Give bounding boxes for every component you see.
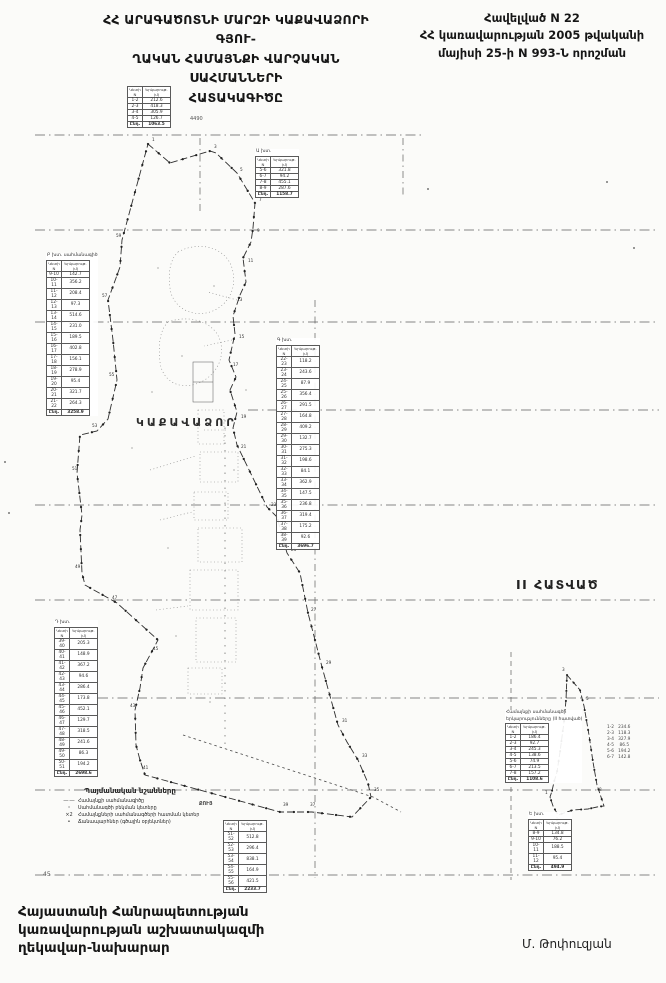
cell: 52-53 xyxy=(224,843,239,854)
cell: 321.7 xyxy=(62,387,90,398)
legend-item-label: Համայնքների սահմանագծերի հատման կետեր xyxy=(78,813,199,818)
boundary-point-number: 53 xyxy=(92,423,98,428)
legend-item: —·—Համայնքի սահմանագիծը xyxy=(60,798,240,804)
cell: 97.3 xyxy=(62,299,90,310)
cell: 362.9 xyxy=(292,477,320,488)
cell: 838.1 xyxy=(239,854,267,865)
boundary-point-number: 29 xyxy=(326,660,332,665)
text-line: կառավարության աշխատակազմի xyxy=(18,921,264,939)
col-header: Երկարութ. (մ) xyxy=(292,345,320,356)
text-line: 6-7 142.8 xyxy=(607,755,630,761)
boundary-point-number: 8 xyxy=(599,787,602,792)
legend-items: —·—Համայնքի սահմանագիծը⹀Սահմանագծի բեկմա… xyxy=(60,798,240,825)
boundary-point-number: 41 xyxy=(143,765,149,770)
cell: 55-56 xyxy=(224,876,239,887)
cell: 22-23 xyxy=(277,356,292,367)
cell: 156.1 xyxy=(62,354,90,365)
cell: 12-13 xyxy=(47,299,62,310)
cell: 275.3 xyxy=(292,444,320,455)
cell: 291.5 xyxy=(292,400,320,411)
cell: 94.6 xyxy=(70,671,98,682)
cell: 33-34 xyxy=(277,477,292,488)
signature-name: Մ. Թոփուզյան xyxy=(522,937,612,951)
boundary-point-number: 39 xyxy=(283,802,289,807)
table-caption: Գ խտ. xyxy=(277,338,320,344)
speck xyxy=(427,188,429,190)
cell: 16-17 xyxy=(47,343,62,354)
cell: 35-36 xyxy=(277,499,292,510)
cell: 1063.5 xyxy=(143,122,171,128)
legend-symbol: —·— xyxy=(60,798,78,804)
cell: 92.6 xyxy=(292,532,320,543)
cell: 3258.9 xyxy=(62,409,90,415)
settlement-detail xyxy=(150,246,242,694)
cell: 43-44 xyxy=(55,682,70,693)
cell: 147.5 xyxy=(292,488,320,499)
cell: 39-40 xyxy=(55,638,70,649)
village-name-label: ԿԱՔԱՎԱՁՈՐ xyxy=(136,416,237,429)
cell: 26-27 xyxy=(277,400,292,411)
boundary-point-number: 17 xyxy=(233,362,239,367)
text-line: Հայաստանի Հանրապետության xyxy=(18,903,264,921)
cell: Ընդ. xyxy=(128,122,143,128)
cell: 46-47 xyxy=(55,715,70,726)
coord-table: Կետի NԵրկարութ. (մ)1-2212.62-3418.33-430… xyxy=(127,86,171,128)
cell: Ընդ. xyxy=(55,770,70,776)
speck xyxy=(606,181,608,183)
cell: 84.1 xyxy=(292,466,320,477)
settlement-rects xyxy=(193,362,213,402)
col-header: Երկարութ. (մ) xyxy=(62,260,90,271)
cell: Ընդ. xyxy=(256,191,271,197)
cell: 19-20 xyxy=(47,376,62,387)
cell: 45-46 xyxy=(55,704,70,715)
cell: 198.6 xyxy=(292,455,320,466)
boundary-point-number: 27 xyxy=(311,607,317,612)
boundary-point-number: 1 xyxy=(152,137,155,142)
cell: 3696.7 xyxy=(292,543,320,549)
boundary-point-number: 5 xyxy=(240,167,243,172)
cell: Ընդ. xyxy=(277,543,292,549)
text-line: ղեկավար-նախարար xyxy=(18,939,264,957)
cell: 34-35 xyxy=(277,488,292,499)
boundary-point-number: 1 xyxy=(545,790,548,795)
legend-item: ×2Համայնքների սահմանագծերի հատման կետեր xyxy=(60,812,240,818)
map-side-note: ՔՈՒՅ xyxy=(199,801,212,807)
legend-symbol: ⹀ xyxy=(60,805,78,811)
table-caption: Դ խտ. xyxy=(55,620,98,626)
scanned-map-document: { "header": { "title_lines": [ "ՀՀ ԱՐԱԳԱ… xyxy=(0,0,666,983)
cell: 25-26 xyxy=(277,389,292,400)
col-header: Կետի N xyxy=(128,87,143,98)
cell: 51-52 xyxy=(224,832,239,843)
cell: 23-24 xyxy=(277,367,292,378)
boundary-point-number: 15 xyxy=(239,334,245,339)
legend-item-label: Սահմանագծի բեկման կետերը xyxy=(78,806,157,811)
cell: 2233.7 xyxy=(239,887,267,893)
col-header: Կետի N xyxy=(506,724,521,735)
cell: 10-11 xyxy=(529,842,544,853)
legend-symbol: ×2 xyxy=(60,812,78,818)
cell: 24-25 xyxy=(277,378,292,389)
cell: 164.8 xyxy=(292,411,320,422)
cell: 188.5 xyxy=(544,842,572,853)
coord-table: Դ խտ.Կետի NԵրկարութ. (մ)39-40205.340-411… xyxy=(54,620,98,777)
col-header: Կետի N xyxy=(47,260,62,271)
legend-item: •Ճանապարհներ (գծային օբյեկտներ) xyxy=(60,819,240,825)
cell: 514.6 xyxy=(62,310,90,321)
speck xyxy=(4,461,6,463)
coord-note-block: 1-2 234.62-3 118.33-4 327.94-5 86.55-6 1… xyxy=(607,725,630,761)
cell: 95.4 xyxy=(544,853,572,864)
cell: 175.2 xyxy=(292,521,320,532)
cell: 296.4 xyxy=(239,843,267,854)
cell: 40-41 xyxy=(55,649,70,660)
boundary-point-number: 3 xyxy=(562,667,565,672)
col-header: Երկարութ. (մ) xyxy=(544,819,572,830)
legend-item-label: Ճանապարհներ (գծային օբյեկտներ) xyxy=(78,820,171,825)
boundary-point-number: 37 xyxy=(310,802,316,807)
cell: 11-12 xyxy=(529,853,544,864)
cell: 32-33 xyxy=(277,466,292,477)
coord-table: Գ խտ.Կետի NԵրկարութ. (մ)22-23118.223-242… xyxy=(276,338,320,550)
boundary-point-number: 47 xyxy=(112,595,118,600)
coord-table: Ե խտ.Կետի NԵրկարութ. (մ)8-9134.89-1076.2… xyxy=(528,812,572,871)
table-caption: Ե խտ. xyxy=(529,812,572,818)
coord-table-grid: Կետի NԵրկարութ. (մ)22-23118.223-24243.62… xyxy=(276,345,320,550)
cell: 194.2 xyxy=(70,759,98,770)
boundary-point-number: 19 xyxy=(241,414,247,419)
col-header: Երկարութ. (մ) xyxy=(239,821,267,832)
col-header: Երկարութ. (մ) xyxy=(271,156,299,167)
boundary-point-number: 49 xyxy=(75,564,81,569)
cell: 132.7 xyxy=(292,433,320,444)
speck xyxy=(633,247,635,249)
cell: 50-51 xyxy=(55,759,70,770)
legend-title: Պայմանական նշանները xyxy=(84,787,240,795)
boundary-point-number: 9 xyxy=(257,228,260,233)
boundary-point-number: 57 xyxy=(102,293,108,298)
cell: 14-15 xyxy=(47,321,62,332)
boundary-point-number: 43 xyxy=(130,703,136,708)
cell: 452.1 xyxy=(70,704,98,715)
cell: 319.4 xyxy=(292,510,320,521)
cell: 42-43 xyxy=(55,671,70,682)
cell: 189.5 xyxy=(62,332,90,343)
cell: 1158.7 xyxy=(271,191,299,197)
cell: 87.9 xyxy=(292,378,320,389)
cell: 44-45 xyxy=(55,693,70,704)
col-header: Կետի N xyxy=(256,156,271,167)
boundary-point-number: 7 xyxy=(259,197,262,202)
table-caption: Բ խտ. սահմանագիծ xyxy=(47,253,98,259)
cell: 164.9 xyxy=(239,865,267,876)
cell: 11-12 xyxy=(47,288,62,299)
cell: 278.9 xyxy=(62,365,90,376)
table-caption: Համայնքի սահմանագծի xyxy=(506,710,582,716)
boundary-point-number: 55 xyxy=(109,372,115,377)
community-boundary xyxy=(77,144,371,817)
col-header: Կետի N xyxy=(277,345,292,356)
cell: 205.3 xyxy=(70,638,98,649)
coord-table: Կետի NԵրկարութ. (մ)51-52512.852-53296.45… xyxy=(223,820,267,893)
signing-authority-block: Հայաստանի Հանրապետությանկառավարության աշ… xyxy=(18,903,264,958)
boundary-point-number: 21 xyxy=(241,444,247,449)
cell: 28-29 xyxy=(277,422,292,433)
cell: 18-19 xyxy=(47,365,62,376)
cell: 49-50 xyxy=(55,748,70,759)
col-header: Կետի N xyxy=(529,819,544,830)
cell: 54-55 xyxy=(224,865,239,876)
boundary-point-number: 5 xyxy=(586,696,589,701)
cell: 494.9 xyxy=(544,864,572,870)
boundary-point-number: 59 xyxy=(116,233,122,238)
coord-table-grid: Կետի NԵրկարութ. (մ)5-6321.86-794.27-8455… xyxy=(255,156,299,198)
col-header: Երկարութ. (մ) xyxy=(521,724,549,735)
cell: 173.8 xyxy=(70,693,98,704)
legend-item-label: Համայնքի սահմանագիծը xyxy=(78,799,144,804)
grid-coordinate-label-top: 4490 xyxy=(190,116,203,122)
cell: 208.4 xyxy=(62,288,90,299)
cell: 21-22 xyxy=(47,398,62,409)
col-header: Երկարութ. (մ) xyxy=(143,87,171,98)
coord-table-grid: Կետի NԵրկարութ. (մ)9-10142.710-11356.211… xyxy=(46,260,90,416)
cell: 47-48 xyxy=(55,726,70,737)
cell: 421.5 xyxy=(239,876,267,887)
coord-table: Ա խտ.Կետի NԵրկարութ. (մ)5-6321.86-794.27… xyxy=(255,149,299,198)
legend: Պայմանական նշանները —·—Համայնքի սահմանագ… xyxy=(60,787,240,826)
cell: 231.0 xyxy=(62,321,90,332)
cell: 402.8 xyxy=(62,343,90,354)
cell: Ընդ. xyxy=(529,864,544,870)
speck xyxy=(8,512,10,514)
boundary-point-number: 33 xyxy=(362,753,368,758)
cell: 512.8 xyxy=(239,832,267,843)
cell: 2698.6 xyxy=(70,770,98,776)
coord-table-grid: Կետի NԵրկարութ. (մ)51-52512.852-53296.45… xyxy=(223,820,267,893)
coord-table-grid: Կետի NԵրկարութ. (մ)39-40205.340-41148.94… xyxy=(54,627,98,777)
boundary-point-number: 31 xyxy=(342,718,348,723)
cell: 243.6 xyxy=(292,367,320,378)
legend-item: ⹀Սահմանագծի բեկման կետերը xyxy=(60,805,240,811)
cell: 148.9 xyxy=(70,649,98,660)
map-specks xyxy=(131,267,246,702)
legend-symbol: • xyxy=(60,819,78,825)
table-caption: երկարությունները (II հատված) xyxy=(506,717,582,723)
cell: Ընդ. xyxy=(47,409,62,415)
boundary-point-number: 35 xyxy=(374,787,380,792)
coord-table-grid: Կետի NԵրկարութ. (մ)1-2186.42-392.73-4245… xyxy=(505,723,549,783)
cell: 41-42 xyxy=(55,660,70,671)
cell: 53-54 xyxy=(224,854,239,865)
cell: 356.4 xyxy=(292,389,320,400)
cell: 86.3 xyxy=(70,748,98,759)
coord-table: Բ խտ. սահմանագիծԿետի NԵրկարութ. (մ)9-101… xyxy=(46,253,98,416)
boundary-point-number: 11 xyxy=(248,258,254,263)
coord-table-grid: Կետի NԵրկարութ. (մ)1-2212.62-3418.33-430… xyxy=(127,86,171,128)
cell: 409.2 xyxy=(292,422,320,433)
cell: 31-32 xyxy=(277,455,292,466)
coord-table: Համայնքի սահմանագծիերկարությունները (II … xyxy=(505,710,582,783)
cell: 1108.6 xyxy=(521,777,549,783)
cell: 286.4 xyxy=(70,682,98,693)
table-caption: Ա խտ. xyxy=(256,149,299,155)
cell: 37-38 xyxy=(277,521,292,532)
col-header: Երկարութ. (մ) xyxy=(70,627,98,638)
cell: 38-39 xyxy=(277,532,292,543)
cell: Ընդ. xyxy=(224,887,239,893)
cell: 356.2 xyxy=(62,277,90,288)
cell: Ընդ. xyxy=(506,777,521,783)
grid-coordinate-label-bottom: 45 xyxy=(43,871,51,878)
cell: 264.3 xyxy=(62,398,90,409)
boundary-point-number: 45 xyxy=(153,646,159,651)
cell: 48-49 xyxy=(55,737,70,748)
cell: 129.7 xyxy=(70,715,98,726)
cell: 36-37 xyxy=(277,510,292,521)
cell: 15-16 xyxy=(47,332,62,343)
cell: 318.5 xyxy=(70,726,98,737)
cell: 30-31 xyxy=(277,444,292,455)
col-header: Կետի N xyxy=(55,627,70,638)
cell: 118.2 xyxy=(292,356,320,367)
cell: 367.2 xyxy=(70,660,98,671)
cell: 95.4 xyxy=(62,376,90,387)
section-label: II ՀԱՏՎԱԾ xyxy=(516,577,599,592)
cell: 241.6 xyxy=(70,737,98,748)
boundary-point-number: 3 xyxy=(214,144,217,149)
cell: 29-30 xyxy=(277,433,292,444)
cell: 236.8 xyxy=(292,499,320,510)
cell: 13-14 xyxy=(47,310,62,321)
cell: 20-21 xyxy=(47,387,62,398)
cell: 17-18 xyxy=(47,354,62,365)
coord-table-grid: Կետի NԵրկարութ. (մ)8-9134.89-1076.210-11… xyxy=(528,819,572,871)
boundary-point-number: 51 xyxy=(72,466,78,471)
cell: 10-11 xyxy=(47,277,62,288)
cell: 27-28 xyxy=(277,411,292,422)
boundary-point-number: 13 xyxy=(237,297,243,302)
